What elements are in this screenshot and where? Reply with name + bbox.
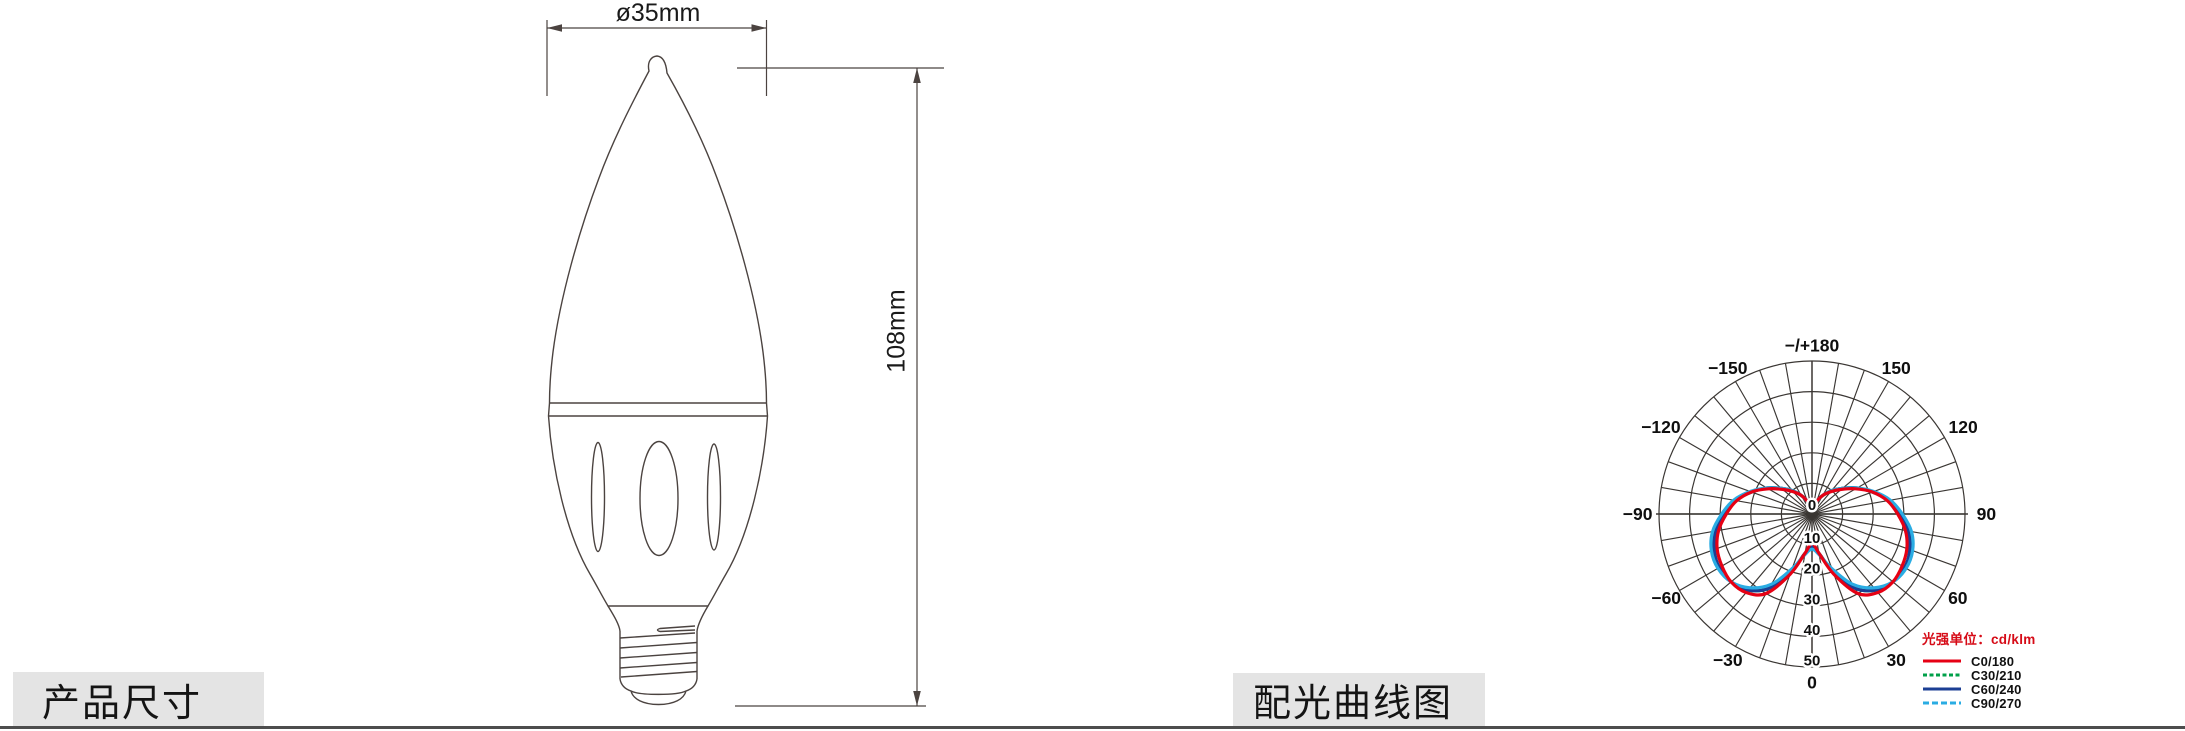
light-distribution-polar-chart: 0306090120150−/+180−150−120−90−60−300102… [0, 0, 2185, 731]
radial-tick-label-10: 10 [1804, 530, 1821, 547]
legend-series-name: C0/180 [1971, 654, 2014, 669]
radial-tick-label-20: 20 [1804, 561, 1821, 578]
legend-swatch [1922, 658, 1962, 664]
angle-label-180: −/+180 [1785, 336, 1840, 356]
angle-label-90: 90 [1977, 504, 1997, 524]
radial-tick-label-30: 30 [1804, 591, 1821, 608]
legend-item-C60-240: C60/240 [1922, 682, 2152, 696]
angle-label--150: −150 [1708, 358, 1748, 378]
angle-label--90: −90 [1623, 504, 1653, 524]
radial-tick-label-50: 50 [1804, 653, 1821, 670]
section-label-product-dimensions: 产品尺寸 [13, 672, 264, 726]
legend-swatch [1922, 686, 1962, 692]
angle-label-120: 120 [1948, 417, 1977, 437]
radial-tick-label-40: 40 [1804, 622, 1821, 639]
angle-label--120: −120 [1641, 417, 1681, 437]
legend-item-C30-210: C30/210 [1922, 668, 2152, 682]
section-label-light-distribution: 配光曲线图 [1233, 673, 1485, 726]
radial-tick-label-0: 0 [1808, 497, 1816, 514]
angle-label--60: −60 [1651, 588, 1681, 608]
bottom-divider-line [0, 726, 2185, 729]
angle-label-30: 30 [1886, 650, 1906, 670]
legend-swatch [1922, 700, 1962, 706]
legend-item-C0-180: C0/180 [1922, 654, 2152, 668]
angle-label-150: 150 [1882, 358, 1911, 378]
spec-sheet-canvas: ø35mm 108mm 0306090120150−/+180−150−120−… [0, 0, 2185, 731]
angle-label-0: 0 [1807, 672, 1817, 692]
legend-unit-label: 光强单位：cd/klm [1922, 628, 2152, 648]
angle-label-60: 60 [1948, 588, 1968, 608]
chart-legend: 光强单位：cd/klm C0/180C30/210C60/240C90/270 [1922, 628, 2152, 710]
legend-swatch [1922, 672, 1962, 678]
legend-series-name: C90/270 [1971, 696, 2022, 711]
legend-series-name: C60/240 [1971, 682, 2022, 697]
angle-label--30: −30 [1713, 650, 1743, 670]
legend-series-name: C30/210 [1971, 668, 2022, 683]
legend-item-C90-270: C90/270 [1922, 696, 2152, 710]
